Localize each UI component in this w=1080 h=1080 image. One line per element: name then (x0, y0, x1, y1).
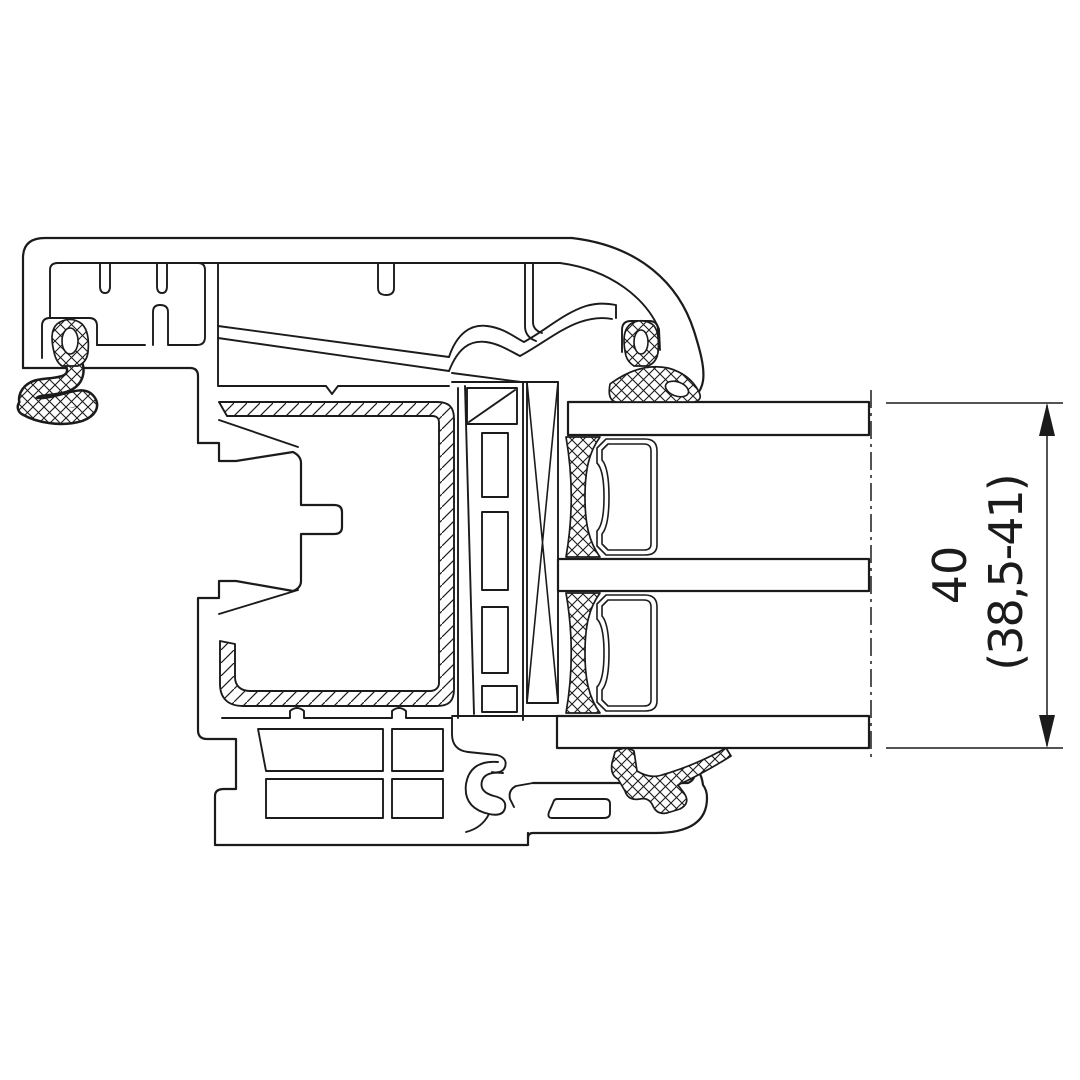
dimension-value: 40 (923, 546, 977, 605)
glazing-upstand-walls (452, 373, 527, 720)
dimension-arrow-up (1039, 403, 1055, 436)
chamber1-bottom-wall (97, 263, 205, 345)
bead-clip-hook (466, 762, 506, 815)
window-profile-drawing: 40 (38,5-41) (0, 0, 1080, 1080)
hump-wall-lower (449, 318, 612, 371)
bead-chamber (548, 799, 610, 818)
screw-slot-1 (100, 263, 110, 293)
spacer-bar-1 (597, 439, 657, 555)
chamber-bottom-wall (222, 708, 452, 718)
glass-pane-outer (568, 402, 869, 435)
dimension-arrow-down (1039, 715, 1055, 748)
screw-slot-3 (378, 263, 394, 295)
dimension-annotation: 40 (38,5-41) (886, 403, 1063, 748)
upstand-chambers (467, 388, 517, 712)
bead-clip-tail (466, 814, 489, 832)
bead-left-hook (510, 783, 533, 807)
steel-reinforcement (219, 402, 454, 706)
cross-section-canvas: 40 (38,5-41) (0, 0, 1080, 1080)
gasket-skirt (609, 367, 700, 402)
glass-pane-inner (557, 716, 869, 748)
spacer-bar-2 (597, 595, 657, 711)
sloped-chamber-walls (218, 326, 449, 371)
gasket-head-hole (62, 328, 78, 354)
lower-chambers (258, 729, 443, 818)
inner-left-wall (50, 263, 58, 318)
glass-pane-middle (558, 559, 869, 591)
edge-sealant-2 (566, 593, 600, 713)
screw-slot-2 (157, 263, 167, 293)
dimension-tolerance: (38,5-41) (979, 475, 1033, 670)
divider-wall-2 (525, 263, 542, 341)
glazing-gasket-bottom (612, 748, 731, 813)
glazing-packer (527, 382, 558, 703)
glazing-unit (557, 390, 871, 760)
edge-sealant-1 (566, 437, 600, 557)
hardware-groove-and-left-body (198, 443, 528, 845)
rebate-floor-wall (218, 386, 449, 394)
gasket-head-hole (634, 330, 648, 354)
